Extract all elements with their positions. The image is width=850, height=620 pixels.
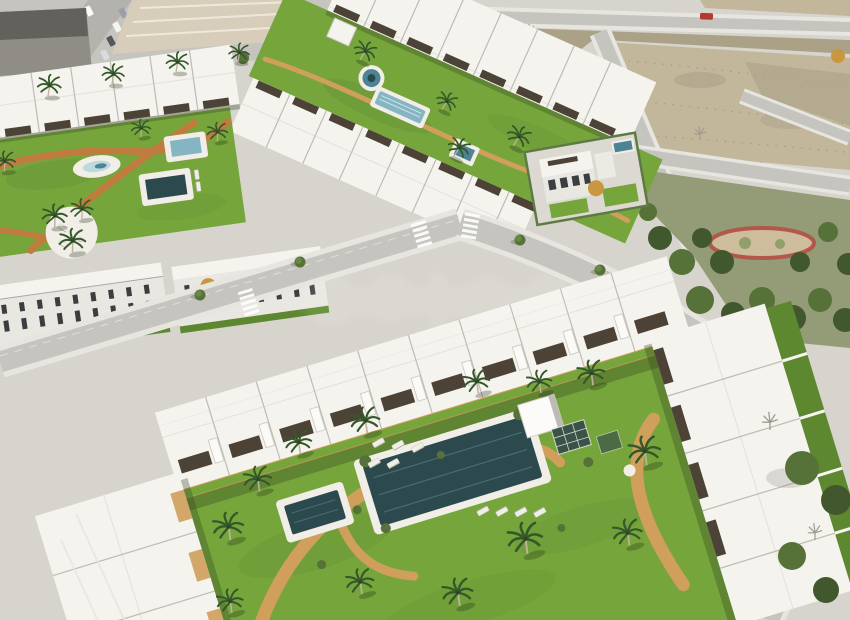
red-car [700, 13, 713, 20]
gray-house-roof [0, 8, 88, 40]
aerial-render [0, 0, 850, 620]
watermark [300, 272, 574, 328]
villa-pool [612, 139, 634, 153]
autumn-tree [831, 49, 845, 63]
render-canvas [0, 0, 850, 620]
